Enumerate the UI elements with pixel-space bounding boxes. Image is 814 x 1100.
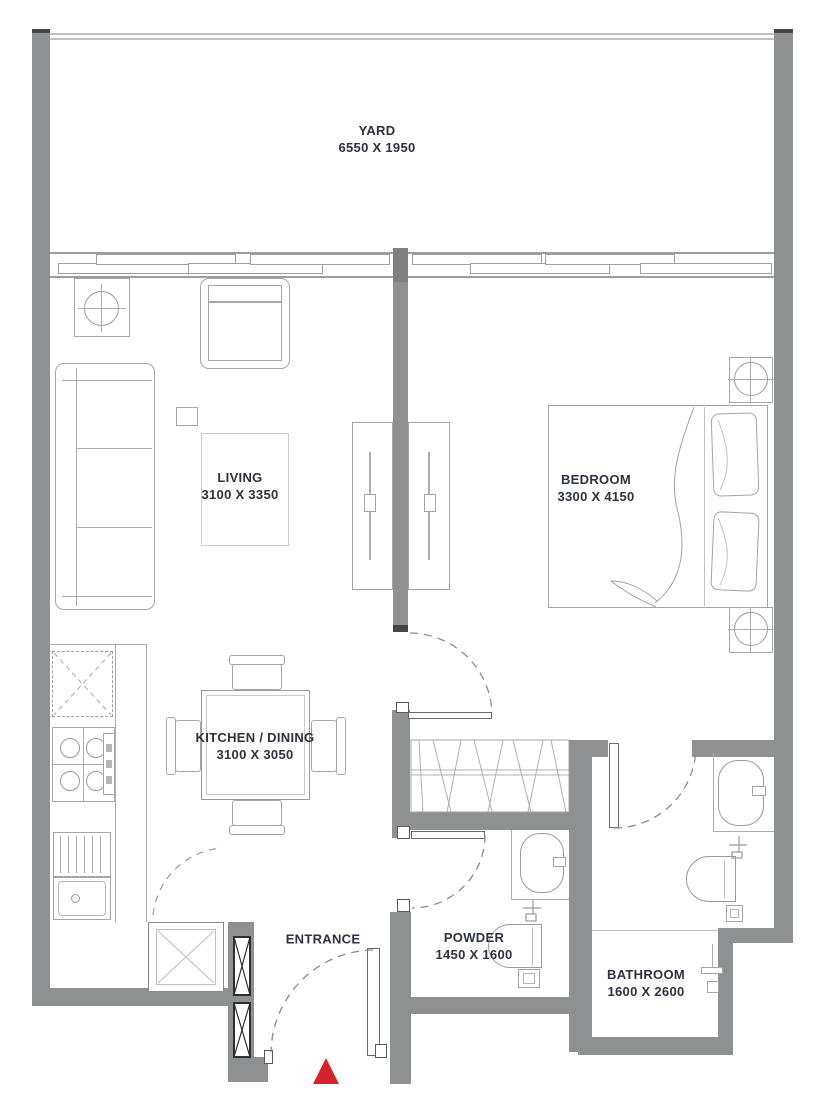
- room-name: KITCHEN / DINING: [196, 729, 315, 746]
- shaft-box: [233, 936, 251, 996]
- wardrobe-latch: [364, 494, 376, 512]
- sofa-arm-line: [62, 596, 152, 597]
- shaft-box: [233, 1002, 251, 1058]
- sofa-back-line: [76, 368, 77, 606]
- powder-door-leaf: [411, 831, 485, 839]
- drain-icon: [71, 894, 80, 903]
- bathroom-door-leaf: [609, 743, 619, 828]
- room-label-yard: YARD 6550 X 1950: [338, 122, 415, 156]
- drainer-line: [76, 836, 77, 873]
- door-jamb: [396, 702, 409, 713]
- wall-closet-bottom: [392, 812, 592, 830]
- wall-center-divider: [393, 248, 408, 632]
- yard-boundary-line: [50, 33, 774, 35]
- hob-knob: [106, 776, 112, 784]
- window-pane: [250, 254, 390, 265]
- drainer-line: [60, 836, 61, 873]
- room-dims: 6550 X 1950: [338, 139, 415, 156]
- flush-unit-inner: [730, 909, 739, 918]
- toilet-bowl: [686, 856, 736, 902]
- closet-hatch: [411, 740, 569, 812]
- faucet-icon: [752, 786, 766, 796]
- fridge-space: [52, 651, 113, 717]
- floor-plan: YARD 6550 X 1950 LIVING 3100 X 3350 BEDR…: [0, 0, 814, 1100]
- drainer: [53, 832, 111, 877]
- room-label-powder: POWDER 1450 X 1600: [435, 929, 512, 963]
- window-frame-line: [50, 276, 774, 278]
- wall-right-outer: [774, 32, 793, 943]
- hob-knob: [106, 744, 112, 752]
- door-jamb: [264, 1050, 273, 1064]
- fcu-cross-line: [78, 308, 126, 309]
- entrance-text: ENTRANCE: [286, 931, 361, 948]
- fcu-cross-line: [101, 284, 102, 332]
- window-pane: [640, 263, 772, 274]
- entrance-label: ENTRANCE: [286, 931, 361, 948]
- bedroom-door-arc: [410, 633, 492, 712]
- bathroom-door-arc: [614, 746, 696, 828]
- side-table: [176, 407, 198, 426]
- armchair-seat: [208, 302, 282, 361]
- hob-knob: [106, 760, 112, 768]
- yard-boundary-line: [50, 38, 774, 40]
- flush-unit-inner: [523, 973, 535, 984]
- vanity-edge: [713, 831, 774, 832]
- shower-drain-icon: [707, 981, 719, 993]
- burner-icon: [60, 771, 80, 791]
- shower-head-icon: [701, 967, 723, 974]
- wall-bath-right-stub: [718, 928, 793, 943]
- room-dims: 1600 X 2600: [607, 983, 685, 1000]
- chair-seat: [232, 800, 282, 826]
- drainer-line: [100, 836, 101, 873]
- chair: [229, 825, 285, 835]
- door-jamb: [375, 1044, 387, 1058]
- drainer-line: [84, 836, 85, 873]
- pillow: [710, 511, 759, 592]
- room-label-kitchen: KITCHEN / DINING 3100 X 3050: [196, 729, 315, 763]
- lamp-cross-line: [750, 607, 751, 653]
- bath-floor-line: [592, 930, 718, 931]
- room-name: BATHROOM: [607, 966, 685, 983]
- bed-sheet-line: [704, 407, 705, 606]
- kitchen-door-arc: [153, 848, 222, 915]
- sofa-arm-line: [62, 380, 152, 381]
- entrance-door-arc: [271, 950, 373, 1052]
- room-name: BEDROOM: [557, 471, 634, 488]
- hob-grid-line: [53, 764, 104, 765]
- door-jamb: [397, 899, 410, 912]
- room-dims: 1450 X 1600: [435, 946, 512, 963]
- sofa-cushion-line: [76, 448, 152, 449]
- wall-powder-bottom: [411, 997, 592, 1014]
- burner-icon: [60, 738, 80, 758]
- sofa-cushion-line: [76, 527, 152, 528]
- room-label-bathroom: BATHROOM 1600 X 2600: [607, 966, 685, 1000]
- chair-seat: [232, 664, 282, 690]
- wall-cap: [393, 625, 408, 632]
- drainer-line: [68, 836, 69, 873]
- toilet-seat-line: [724, 860, 725, 898]
- lamp-cross-line: [728, 379, 774, 380]
- sofa: [55, 363, 155, 610]
- shower-pipe: [712, 944, 713, 968]
- powder-door-arc: [412, 835, 485, 908]
- lamp-cross-line: [750, 357, 751, 403]
- kitchen-sink-basin: [58, 881, 106, 916]
- room-label-bedroom: BEDROOM 3300 X 4150: [557, 471, 634, 505]
- entrance-door-leaf: [367, 948, 380, 1056]
- lamp-cross-line: [728, 629, 774, 630]
- bedroom-door-leaf: [408, 712, 492, 719]
- chair: [336, 717, 346, 775]
- chair-seat: [311, 720, 337, 772]
- room-dims: 3100 X 3050: [196, 746, 315, 763]
- wall-bath-top-left: [569, 740, 608, 757]
- wall-left-outer: [32, 32, 50, 1006]
- entrance-marker-icon: [313, 1058, 339, 1084]
- counter-edge: [115, 644, 116, 922]
- window-mullion: [393, 248, 408, 282]
- vanity-edge: [511, 830, 512, 900]
- wall-cap: [774, 29, 793, 33]
- room-name: YARD: [338, 122, 415, 139]
- wall-bath-right-lower: [718, 943, 733, 1050]
- room-name: LIVING: [201, 469, 278, 486]
- room-dims: 3300 X 4150: [557, 488, 634, 505]
- counter-edge: [146, 644, 147, 922]
- wall-bath-top-right: [692, 740, 774, 757]
- toilet-seat-line: [532, 927, 533, 965]
- door-jamb: [397, 826, 410, 839]
- room-dims: 3100 X 3350: [201, 486, 278, 503]
- counter-edge: [50, 644, 147, 645]
- wall-cap: [32, 29, 50, 33]
- room-label-living: LIVING 3100 X 3350: [201, 469, 278, 503]
- vanity-edge: [511, 899, 569, 900]
- appliance-space-inner: [156, 929, 216, 985]
- drainer-line: [92, 836, 93, 873]
- pillow: [711, 412, 760, 497]
- wardrobe-latch: [424, 494, 436, 512]
- wall-hall-left-lower: [390, 912, 411, 1084]
- room-name: POWDER: [435, 929, 512, 946]
- faucet-icon: [553, 857, 566, 867]
- vanity-edge: [713, 753, 714, 832]
- wall-bath-bottom: [578, 1037, 733, 1055]
- armchair-back-cushion: [208, 285, 282, 302]
